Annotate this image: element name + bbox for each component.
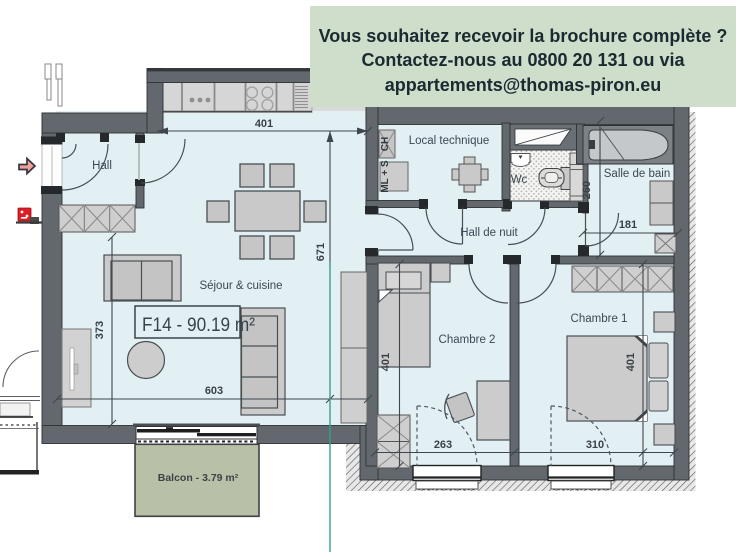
svg-text:Local technique: Local technique	[409, 135, 490, 147]
svg-text:401: 401	[625, 353, 637, 371]
svg-text:appartements@thomas-piron.eu: appartements@thomas-piron.eu	[385, 75, 662, 95]
svg-text:Contactez-nous au 0800 20 131: Contactez-nous au 0800 20 131 ou via	[361, 50, 685, 70]
svg-text:401: 401	[380, 353, 392, 371]
svg-text:ML + S: ML + S	[380, 160, 391, 193]
svg-text:Hall: Hall	[92, 160, 112, 172]
svg-text:Hall de nuit: Hall de nuit	[460, 227, 518, 239]
svg-text:181: 181	[619, 219, 637, 231]
svg-text:671: 671	[315, 243, 327, 261]
svg-text:Wc: Wc	[511, 174, 528, 186]
svg-text:310: 310	[586, 439, 604, 451]
svg-text:401: 401	[255, 118, 273, 130]
svg-text:Séjour & cuisine: Séjour & cuisine	[199, 280, 282, 292]
svg-text:Vous souhaitez recevoir la bro: Vous souhaitez recevoir la brochure comp…	[319, 26, 728, 46]
svg-text:263: 263	[434, 439, 452, 451]
svg-text:Chambre 2: Chambre 2	[439, 334, 496, 346]
svg-text:Salle de bain: Salle de bain	[604, 168, 671, 180]
svg-text:Balcon - 3.79 m²: Balcon - 3.79 m²	[158, 472, 239, 484]
svg-text:260: 260	[581, 181, 593, 199]
svg-text:603: 603	[205, 385, 223, 397]
svg-text:CH: CH	[380, 137, 391, 151]
svg-text:Chambre 1: Chambre 1	[571, 313, 628, 325]
svg-text:373: 373	[94, 321, 106, 339]
svg-text:F14 - 90.19 m²: F14 - 90.19 m²	[142, 315, 255, 336]
